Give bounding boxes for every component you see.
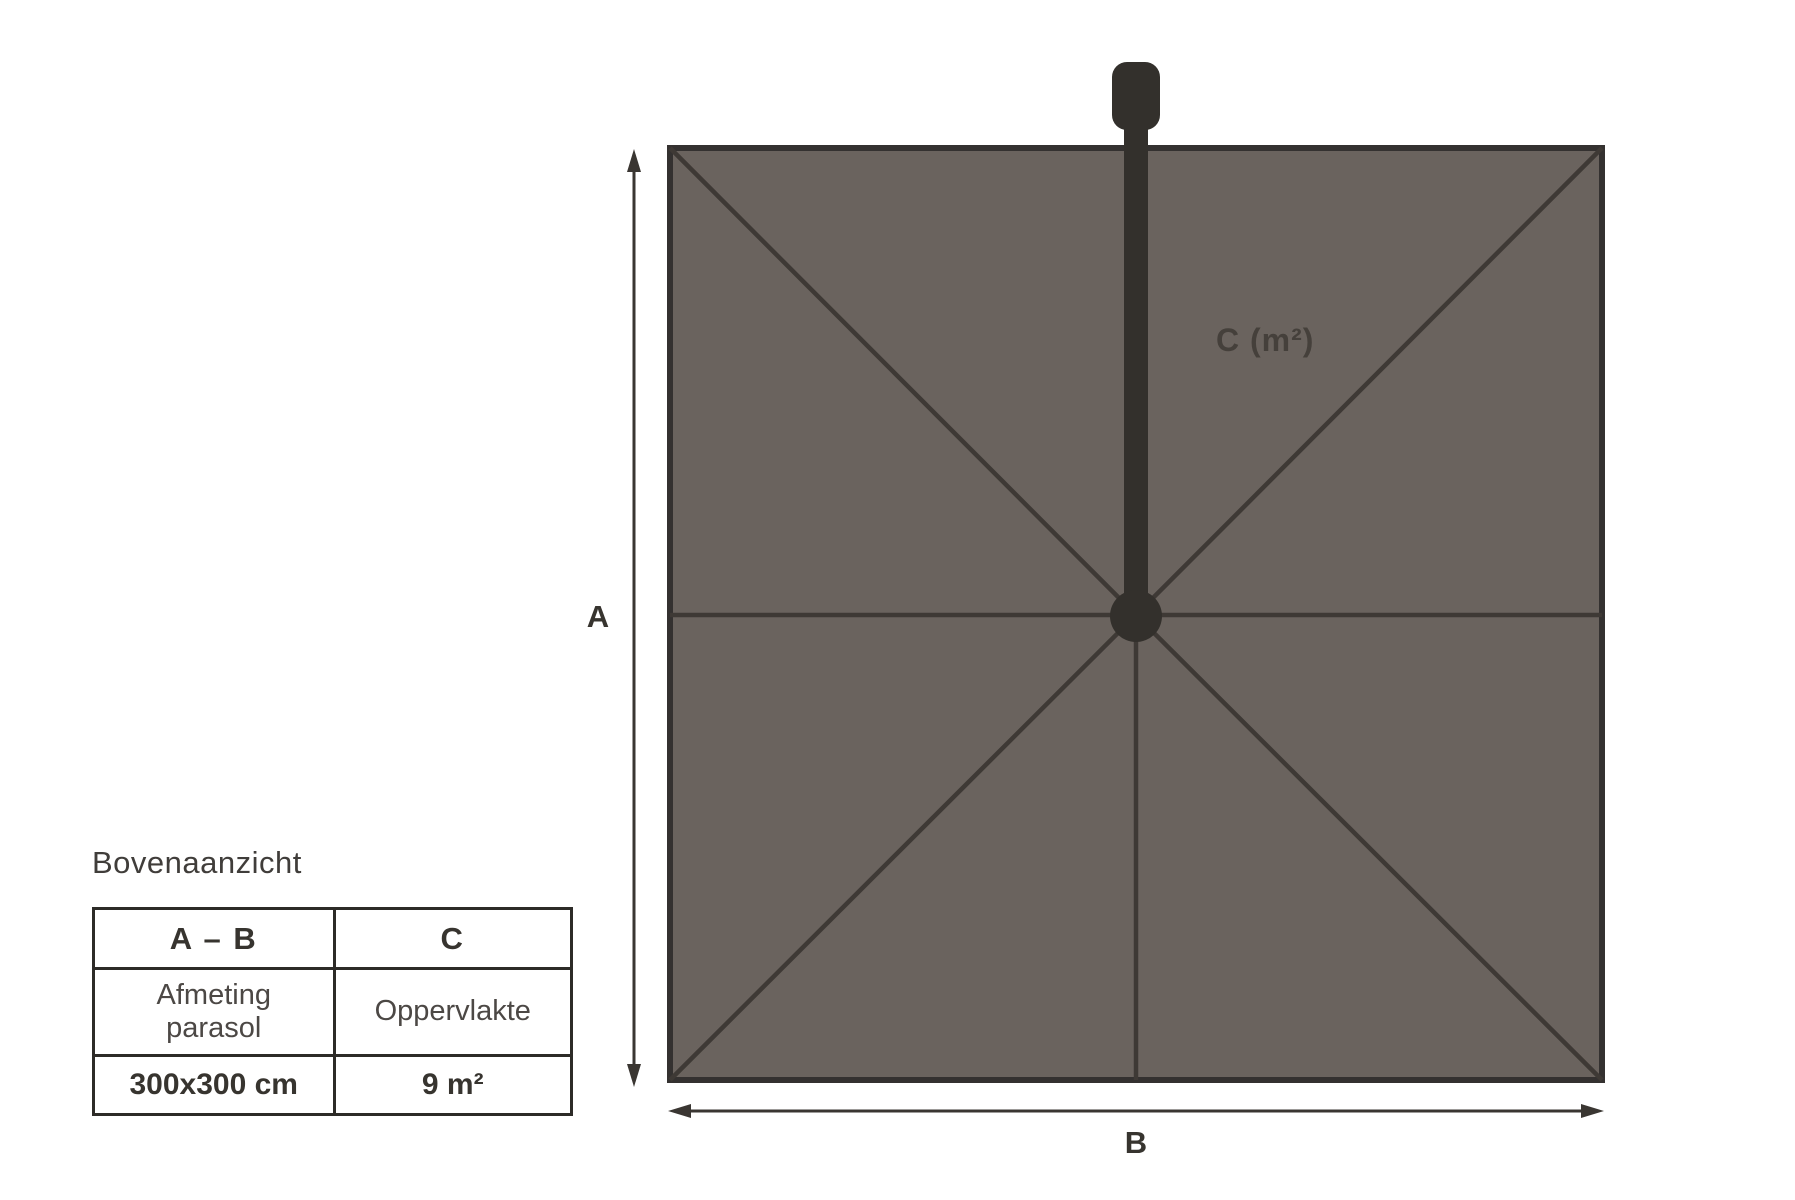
table-header-ab: A – B <box>95 910 333 967</box>
dim-a-label: A <box>576 599 620 635</box>
dimension-arrow-a <box>627 149 641 1087</box>
dim-b-label: B <box>1112 1125 1160 1161</box>
table-cell-area-value: 9 m² <box>333 1057 571 1113</box>
table-cell-dimension-label: Afmeting parasol <box>95 970 333 1054</box>
table-row: Afmeting parasol Oppervlakte <box>95 967 570 1054</box>
view-title: Bovenaanzicht <box>92 845 302 881</box>
table-header-row: A – B C <box>95 910 570 967</box>
table-row: 300x300 cm 9 m² <box>95 1054 570 1113</box>
parasol-topview-page: A B C (m²) Bovenaanzicht A – B C Afmetin… <box>0 0 1795 1200</box>
area-label: C (m²) <box>1216 322 1314 359</box>
table-cell-dimension-value: 300x300 cm <box>95 1057 333 1113</box>
spec-table: A – B C Afmeting parasol Oppervlakte 300… <box>92 907 573 1116</box>
center-hub <box>1110 590 1162 642</box>
pole-knob <box>1112 62 1160 130</box>
dimension-arrow-b <box>668 1104 1604 1118</box>
table-header-c: C <box>333 910 571 967</box>
table-cell-area-label: Oppervlakte <box>333 970 571 1054</box>
pole <box>1124 110 1148 616</box>
